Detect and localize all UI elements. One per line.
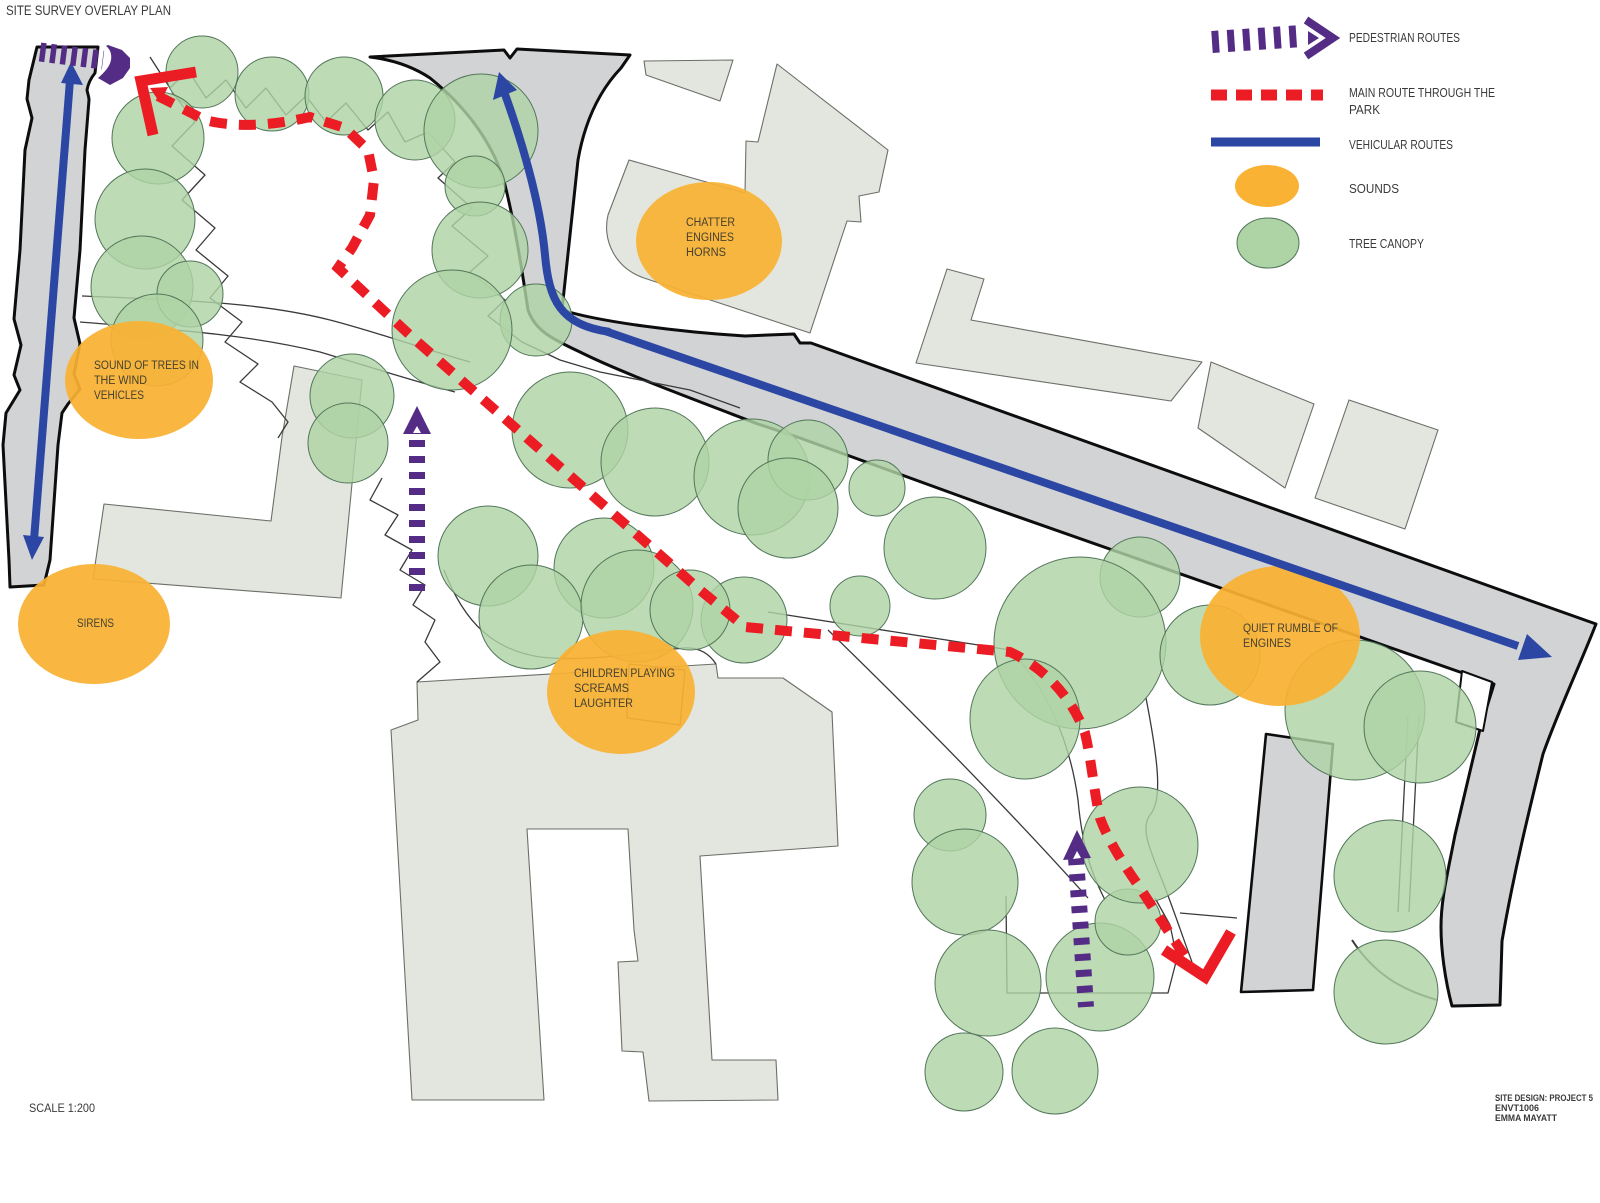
svg-text:THE WIND: THE WIND (94, 375, 147, 387)
svg-text:QUIET RUMBLE OF: QUIET RUMBLE OF (1243, 623, 1338, 635)
svg-text:SCALE 1:200: SCALE 1:200 (29, 1101, 95, 1115)
svg-text:ENGINES: ENGINES (1243, 638, 1291, 650)
svg-text:LAUGHTER: LAUGHTER (574, 698, 633, 710)
svg-text:PEDESTRIAN ROUTES: PEDESTRIAN ROUTES (1349, 30, 1460, 45)
svg-text:ENGINES: ENGINES (686, 232, 734, 244)
svg-text:TREE CANOPY: TREE CANOPY (1349, 236, 1424, 251)
svg-text:MAIN ROUTE THROUGH THE: MAIN ROUTE THROUGH THE (1349, 85, 1495, 100)
svg-text:SOUND OF TREES IN: SOUND OF TREES IN (94, 360, 199, 372)
svg-text:SCREAMS: SCREAMS (574, 683, 629, 695)
svg-text:SOUNDS: SOUNDS (1349, 181, 1399, 196)
svg-text:CHILDREN PLAYING: CHILDREN PLAYING (574, 668, 675, 680)
svg-text:SITE SURVEY OVERLAY PLAN: SITE SURVEY OVERLAY PLAN (6, 3, 171, 18)
svg-text:CHATTER: CHATTER (686, 217, 735, 229)
svg-text:SIRENS: SIRENS (77, 618, 114, 630)
svg-text:HORNS: HORNS (686, 247, 726, 259)
svg-text:VEHICULAR ROUTES: VEHICULAR ROUTES (1349, 137, 1453, 152)
svg-text:VEHICLES: VEHICLES (94, 390, 144, 402)
svg-text:EMMA MAYATT: EMMA MAYATT (1495, 1113, 1557, 1124)
svg-text:PARK: PARK (1349, 102, 1380, 117)
